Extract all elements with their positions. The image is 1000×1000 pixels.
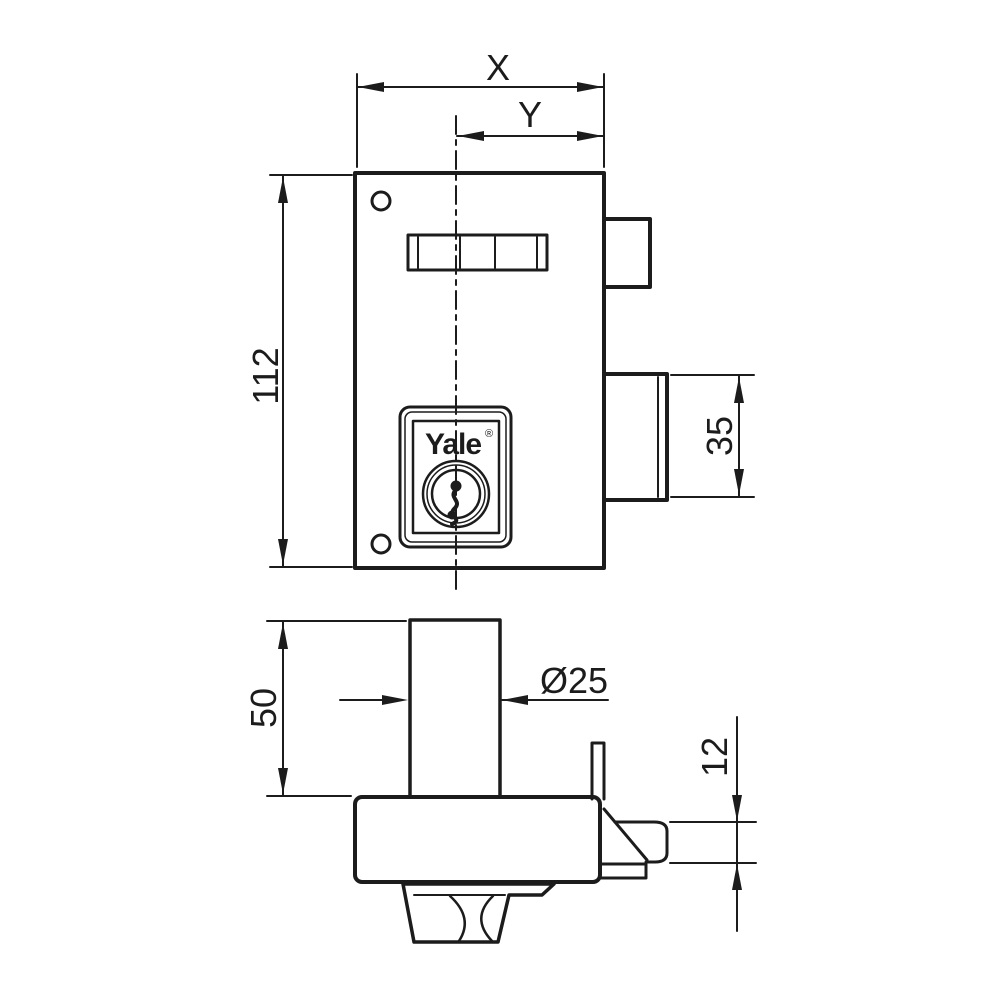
- arrow-x-right: [577, 82, 603, 92]
- arrow-y-right: [577, 131, 603, 141]
- strike-flange-tab: [592, 743, 604, 799]
- dim-x-lines: [357, 74, 604, 167]
- dim-112-label: 112: [245, 347, 286, 404]
- latch-slot-outline: [408, 235, 547, 270]
- dim-35-label: 35: [699, 416, 740, 456]
- lock-case-outline: [355, 797, 600, 882]
- arrow-35-bottom: [734, 469, 744, 495]
- cylinder-housing: [410, 620, 500, 797]
- dim-12-label: 12: [694, 737, 735, 777]
- dim-d25-label: Ø25: [540, 660, 608, 701]
- arrow-12-bottom: [732, 864, 742, 890]
- strike-block-top: [604, 219, 650, 287]
- follower-arc-left: [450, 896, 465, 941]
- bottom-view: [355, 620, 667, 942]
- registered-mark: ®: [485, 428, 493, 440]
- drawing-root: X Y 112 35 50 Ø25 12 Yale ®: [243, 47, 756, 942]
- arrow-112-bottom: [278, 539, 288, 565]
- bolt-outline: [615, 822, 667, 862]
- screw-hole-bottom: [372, 535, 390, 553]
- arrow-112-top: [278, 177, 288, 203]
- dim-50-label: 50: [243, 688, 284, 728]
- follower-trapezoid: [403, 884, 554, 942]
- arrow-35-top: [734, 377, 744, 403]
- dim-50-lines: [267, 621, 406, 796]
- arrow-d25-left: [382, 695, 408, 705]
- latch-slot-segments: [418, 237, 537, 268]
- follower-arc-right: [481, 896, 493, 941]
- yale-logo-text: Yale: [425, 428, 481, 461]
- lock-dimension-drawing: X Y 112 35 50 Ø25 12 Yale ®: [0, 0, 1000, 1000]
- arrow-x-left: [358, 82, 384, 92]
- lock-body-outline: [355, 173, 604, 568]
- bolt-step-plate: [600, 864, 646, 878]
- bolt-bevel-line: [604, 809, 647, 860]
- technical-drawing-canvas: X Y 112 35 50 Ø25 12 Yale ®: [0, 0, 1000, 1000]
- screw-hole-top: [372, 192, 390, 210]
- dim-x-label: X: [486, 47, 510, 88]
- front-view: [355, 116, 667, 592]
- arrow-12-top: [732, 795, 742, 821]
- arrow-d25-right: [502, 695, 528, 705]
- arrow-50-top: [278, 623, 288, 649]
- arrow-50-bottom: [278, 768, 288, 794]
- dim-y-label: Y: [518, 94, 542, 135]
- arrow-y-left: [458, 131, 484, 141]
